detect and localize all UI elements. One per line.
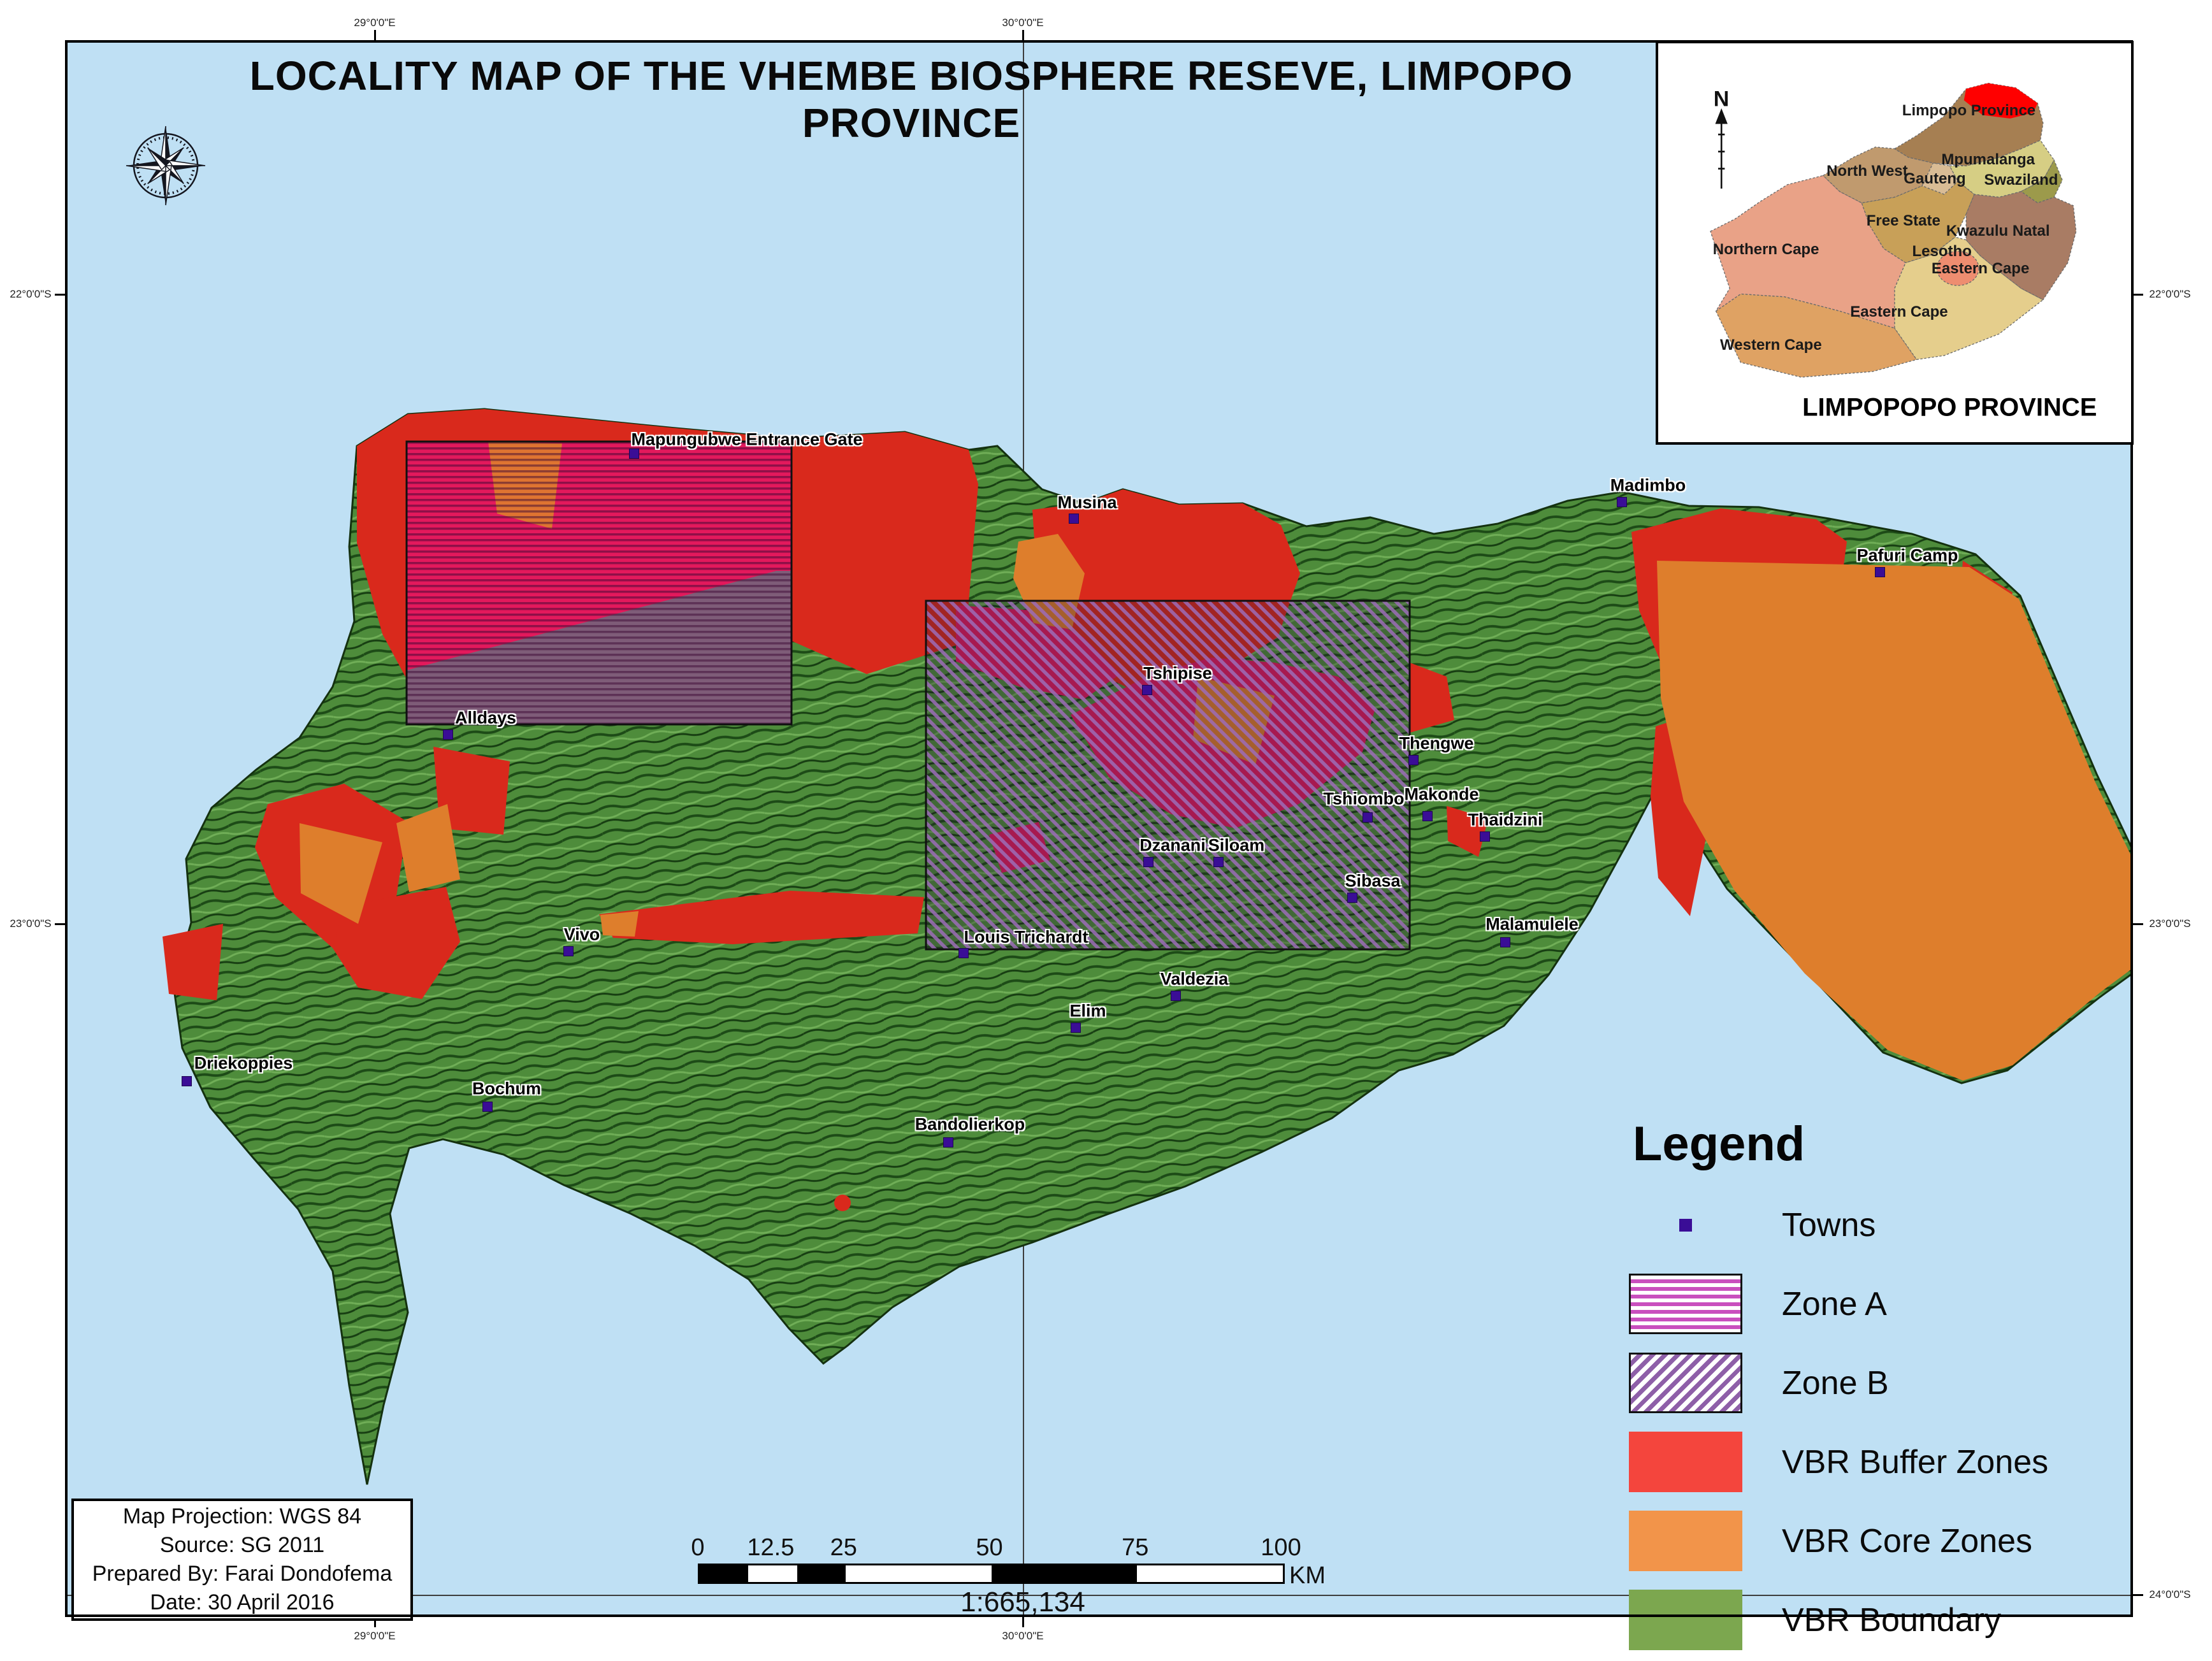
- inset-province-label: Gauteng: [1904, 170, 1965, 188]
- graticule-tick-label: 22°0'0"S: [10, 288, 51, 301]
- scale-bar-track: [698, 1564, 1285, 1584]
- town-label: Thengwe: [1399, 734, 1473, 754]
- graticule-tick-label: 30°0'0"E: [1002, 1630, 1043, 1643]
- inset-province-label: Kwazulu Natal: [1946, 222, 2050, 240]
- town-label: Madimbo: [1610, 476, 1686, 496]
- legend-item: Zone B: [1629, 1353, 2158, 1413]
- town-label: Thaidzini: [1468, 810, 1543, 830]
- scale-km-label: 12.5: [747, 1534, 794, 1562]
- town-label: Malamulele: [1486, 915, 1579, 935]
- town-marker: [1617, 497, 1627, 507]
- town-marker: [629, 449, 639, 459]
- inset-province-label: Mpumalanga: [1941, 151, 2035, 169]
- inset-province-label: Free State: [1867, 212, 1941, 230]
- scale-km-label: 25: [830, 1534, 857, 1562]
- legend-item: Towns: [1629, 1195, 2158, 1255]
- legend-item: Zone A: [1629, 1274, 2158, 1334]
- legend-item: VBR Core Zones: [1629, 1511, 2158, 1571]
- scale-segment: [797, 1565, 846, 1582]
- town-marker: [1213, 857, 1224, 867]
- town-marker: [482, 1102, 493, 1112]
- inset-north-label: N: [1714, 87, 1730, 112]
- town-marker: [1069, 514, 1079, 524]
- legend-item-label: Towns: [1782, 1206, 1876, 1244]
- legend-swatch: [1629, 1432, 1742, 1492]
- town-marker: [1363, 812, 1373, 823]
- color-swatch: [1629, 1432, 1742, 1492]
- graticule-tick-label: 30°0'0"E: [1002, 17, 1043, 29]
- town-label: Tshiombo: [1324, 789, 1405, 809]
- town-label: Bandolierkop: [915, 1115, 1025, 1135]
- graticule-tick-label: 29°0'0"E: [354, 1630, 395, 1643]
- scale-km-label: 100: [1261, 1534, 1301, 1562]
- graticule-tick-label: 23°0'0"S: [10, 917, 51, 930]
- zone-b-swatch: [1629, 1353, 1742, 1413]
- scale-segment: [1137, 1565, 1283, 1582]
- inset-province-label: Eastern Cape: [1932, 260, 2029, 278]
- inset-province-label: Limpopo Province: [1902, 102, 2035, 120]
- legend-swatch: [1629, 1195, 1742, 1255]
- inset-province-label: Lesotho: [1912, 243, 1972, 261]
- graticule-tick: [374, 30, 376, 40]
- town-marker: [943, 1137, 953, 1147]
- legend-item-label: VBR Buffer Zones: [1782, 1443, 2048, 1481]
- town-label: Mapungubwe Entrance Gate: [631, 430, 862, 450]
- town-label: Siloam: [1208, 836, 1265, 856]
- town-marker: [1408, 755, 1419, 765]
- town-label: Makonde: [1404, 785, 1478, 805]
- town-marker: [1500, 937, 1510, 947]
- inset-locator-map: N LIMPOPOPO PROVINCE Limpopo ProvinceNor…: [1656, 41, 2134, 445]
- inset-province-label: Swaziland: [1984, 171, 2058, 189]
- inset-province-label: Eastern Cape: [1850, 303, 1948, 321]
- legend-item: VBR Buffer Zones: [1629, 1432, 2158, 1492]
- map-info-box: Map Projection: WGS 84Source: SG 2011Pre…: [71, 1499, 413, 1621]
- scale-unit-label: KM: [1289, 1562, 1326, 1590]
- legend-item: VBR Boundary: [1629, 1590, 2158, 1650]
- scale-ratio: 1:665,134: [895, 1586, 1150, 1618]
- town-marker: [1171, 991, 1181, 1001]
- scale-km-label: 75: [1122, 1534, 1148, 1562]
- scale-km-label: 50: [976, 1534, 1002, 1562]
- legend-items: TownsZone AZone BVBR Buffer ZonesVBR Cor…: [1629, 1195, 2158, 1650]
- legend: Legend TownsZone AZone BVBR Buffer Zones…: [1629, 1116, 2158, 1661]
- legend-title: Legend: [1633, 1116, 2158, 1172]
- color-swatch: [1629, 1511, 1742, 1571]
- inset-province-label: Western Cape: [1720, 336, 1822, 354]
- graticule-tick: [2133, 294, 2143, 296]
- town-label: Elim: [1069, 1002, 1106, 1021]
- inset-north-arrow-icon: [1716, 111, 1726, 189]
- zone-b-area: [926, 601, 1410, 949]
- town-marker: [1875, 567, 1885, 577]
- info-line: Prepared By: Farai Dondofema: [74, 1560, 410, 1588]
- scale-segment: [846, 1565, 992, 1582]
- legend-swatch: [1629, 1274, 1742, 1334]
- town-marker: [1142, 685, 1152, 695]
- town-marker-swatch: [1679, 1219, 1692, 1232]
- inset-province-label: North West: [1826, 162, 1908, 180]
- scale-segment: [700, 1565, 748, 1582]
- map-sheet: LOCALITY MAP OF THE VHEMBE BIOSPHERE RES…: [0, 0, 2212, 1661]
- graticule-tick: [1022, 1617, 1024, 1627]
- legend-item-label: Zone B: [1782, 1364, 1889, 1402]
- legend-swatch: [1629, 1511, 1742, 1571]
- zone-a-area: [407, 442, 792, 724]
- info-line: Map Projection: WGS 84: [74, 1502, 410, 1531]
- graticule-tick: [55, 294, 65, 296]
- town-label: Alldays: [455, 708, 516, 728]
- color-swatch: [1629, 1590, 1742, 1650]
- graticule-tick-label: 22°0'0"S: [2149, 288, 2190, 301]
- scale-segment: [748, 1565, 797, 1582]
- info-line: Source: SG 2011: [74, 1531, 410, 1560]
- town-marker: [1143, 857, 1153, 867]
- map-title: LOCALITY MAP OF THE VHEMBE BIOSPHERE RES…: [166, 52, 1657, 147]
- town-label: Dzanani: [1139, 836, 1206, 856]
- town-label: Louis Trichardt: [964, 928, 1088, 947]
- graticule-tick-label: 23°0'0"S: [2149, 917, 2190, 930]
- town-label: Valdezia: [1160, 970, 1229, 989]
- town-marker: [443, 730, 453, 740]
- legend-item-label: VBR Boundary: [1782, 1601, 2001, 1639]
- town-label: Driekoppies: [194, 1054, 293, 1074]
- legend-item-label: VBR Core Zones: [1782, 1522, 2032, 1560]
- inset-caption: LIMPOPOPO PROVINCE: [1802, 394, 2097, 422]
- town-marker: [1347, 893, 1357, 903]
- town-marker: [1422, 811, 1433, 821]
- town-marker: [958, 948, 969, 958]
- legend-swatch: [1629, 1590, 1742, 1650]
- graticule-tick: [1022, 30, 1024, 40]
- town-marker: [1480, 831, 1490, 842]
- town-marker: [563, 946, 574, 956]
- town-label: Vivo: [564, 925, 600, 945]
- scale-segment: [992, 1565, 1138, 1582]
- town-label: Tshipise: [1143, 664, 1212, 684]
- compass-rose-icon: [102, 96, 229, 248]
- legend-swatch: [1629, 1353, 1742, 1413]
- graticule-tick: [2133, 923, 2143, 925]
- scale-km-label: 0: [691, 1534, 704, 1562]
- town-marker: [182, 1076, 192, 1086]
- town-label: Musina: [1057, 493, 1117, 513]
- graticule-tick-label: 29°0'0"E: [354, 17, 395, 29]
- legend-item-label: Zone A: [1782, 1285, 1887, 1323]
- town-label: Bochum: [472, 1079, 541, 1099]
- town-label: Pafuri Camp: [1856, 546, 1958, 566]
- info-line: Date: 30 April 2016: [74, 1588, 410, 1617]
- zone-a-swatch: [1629, 1274, 1742, 1334]
- town-marker: [1071, 1023, 1081, 1033]
- graticule-tick: [55, 923, 65, 925]
- inset-province-label: Northern Cape: [1713, 241, 1819, 259]
- town-label: Sibasa: [1345, 872, 1400, 891]
